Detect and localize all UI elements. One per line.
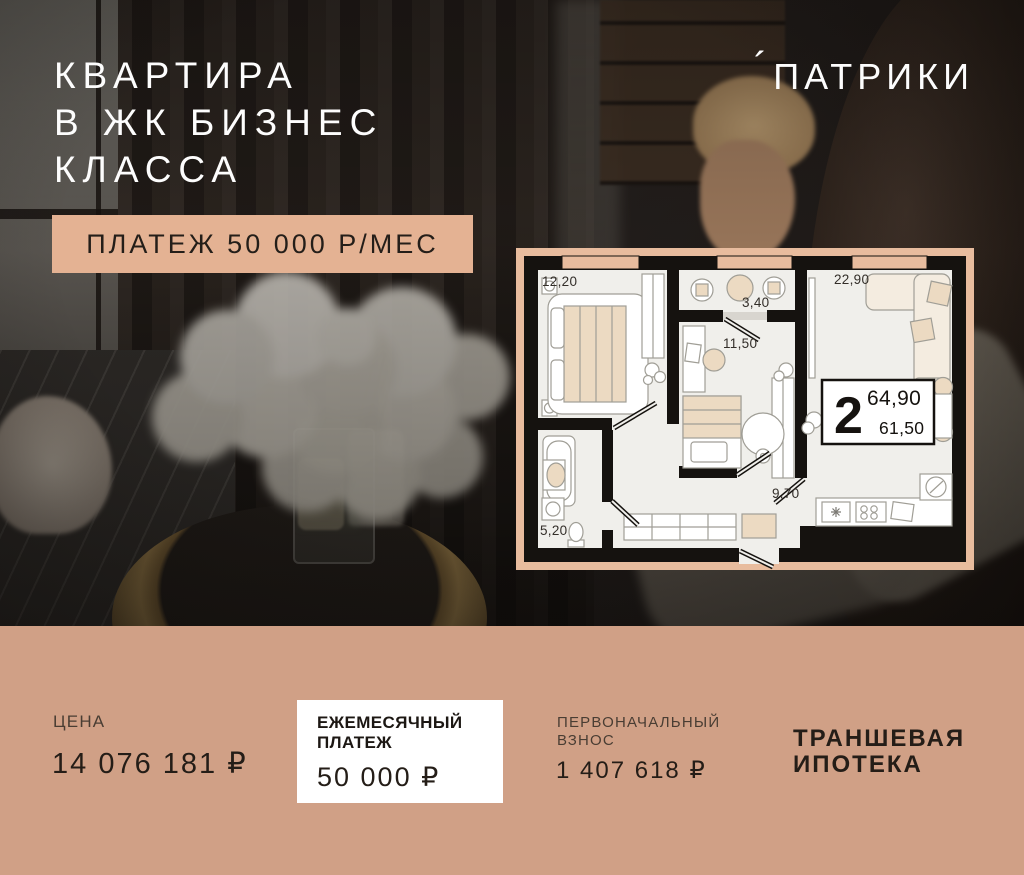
- hallway-furniture: [624, 514, 776, 540]
- pricing-band: ЦЕНА 14 076 181 ₽ ЕЖЕМЕСЯЧНЫЙ ПЛАТЕЖ 50 …: [0, 626, 1024, 875]
- monthly-value: 50 000 ₽: [317, 762, 503, 793]
- mortgage-type: ТРАНШЕВАЯ ИПОТЕКА: [793, 726, 965, 778]
- payment-badge-label: ПЛАТЕЖ 50 000 Р/МЕС: [86, 229, 439, 260]
- mortgage-line-2: ИПОТЕКА: [793, 752, 965, 778]
- area-label-bedroom: 12,20: [542, 274, 577, 289]
- total-area: 64,90: [867, 387, 921, 410]
- loggia-furniture: [691, 275, 785, 301]
- real-estate-ad-poster: КВАРТИРА В ЖК БИЗНЕС КЛАССА ´ ПАТРИКИ ПЛ…: [0, 0, 1024, 875]
- headline-line-1: КВАРТИРА: [54, 52, 383, 99]
- brand-logo: ´ ПАТРИКИ: [754, 56, 974, 98]
- logo-accent-mark: ´: [754, 52, 772, 82]
- down-payment-value: 1 407 618 ₽: [556, 756, 707, 785]
- monthly-label-line-1: ЕЖЕМЕСЯЧНЫЙ: [317, 713, 503, 733]
- floor-plan: 12,20 3,40 22,90 11,50 9,70 5,20 2 64,90…: [516, 248, 974, 570]
- living-area: 61,50: [879, 418, 924, 438]
- monthly-label-line-2: ПЛАТЕЖ: [317, 733, 503, 753]
- plan-info-box: 2 64,90 61,50: [822, 380, 934, 445]
- area-label-living: 22,90: [834, 272, 869, 287]
- mortgage-line-1: ТРАНШЕВАЯ: [793, 726, 965, 752]
- payment-badge: ПЛАТЕЖ 50 000 Р/МЕС: [52, 215, 473, 273]
- rooms-count: 2: [834, 387, 863, 445]
- floor-plan-drawing: 12,20 3,40 22,90 11,50 9,70 5,20 2 64,90…: [516, 248, 974, 570]
- area-label-loggia: 3,40: [742, 295, 769, 310]
- headline-line-3: КЛАССА: [54, 146, 383, 193]
- plan-windows: [562, 256, 927, 269]
- bedroom-furniture: [542, 274, 666, 416]
- area-label-bathroom: 5,20: [540, 523, 567, 538]
- down-payment-label: ПЕРВОНАЧАЛЬНЫЙ ВЗНОС: [557, 714, 720, 750]
- price-value: 14 076 181 ₽: [52, 746, 248, 781]
- monthly-payment-card: ЕЖЕМЕСЯЧНЫЙ ПЛАТЕЖ 50 000 ₽: [297, 700, 503, 803]
- price-label: ЦЕНА: [53, 712, 105, 731]
- headline: КВАРТИРА В ЖК БИЗНЕС КЛАССА: [54, 52, 383, 193]
- logo-text: ПАТРИКИ: [773, 56, 974, 98]
- headline-line-2: В ЖК БИЗНЕС: [54, 99, 383, 146]
- area-label-hallway: 9,70: [772, 486, 799, 501]
- area-label-room2: 11,50: [723, 336, 757, 351]
- plan-threshold: [723, 312, 767, 320]
